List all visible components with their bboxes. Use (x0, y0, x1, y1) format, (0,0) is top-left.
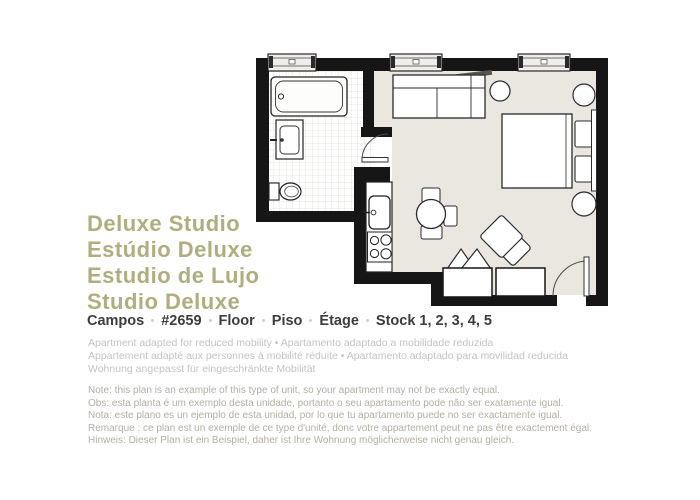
stove-4-burners (368, 232, 393, 262)
windows (268, 54, 570, 71)
closet-2 (496, 268, 545, 296)
separator-dot (209, 319, 212, 322)
info-floor-pt: Piso (272, 313, 303, 329)
separator-dot (262, 319, 265, 322)
floor-plan (254, 44, 612, 310)
window-1 (268, 54, 316, 71)
info-building: Campos (87, 313, 144, 329)
bathtub (271, 77, 347, 116)
separator-dot (366, 319, 369, 322)
toilet (269, 183, 301, 200)
unit-title-es: Estudio de Lujo (87, 263, 260, 289)
info-floor-fr: Étage (319, 313, 359, 329)
separator-dot (151, 319, 154, 322)
window-3 (518, 54, 570, 71)
disclaimer-fr: Remarque : ce plan est un exemple de ce … (88, 423, 592, 436)
unit-title-en: Deluxe Studio (87, 211, 260, 237)
disclaimer-es: Nota: este plano es un ejemplo de esta u… (88, 410, 592, 423)
window-2 (390, 54, 442, 71)
unit-title-pt: Estúdio Deluxe (87, 237, 260, 263)
pillow-1 (575, 121, 592, 147)
separator-dot (309, 319, 312, 322)
side-table-3 (572, 192, 596, 216)
headboard (592, 110, 597, 191)
disclaimer-de: Hinweis: Dieser Plan ist ein Beispiel, d… (88, 435, 592, 448)
info-floor-en: Floor (219, 313, 255, 329)
unit-info-line: Campos#2659FloorPisoÉtageStock 1, 2, 3, … (87, 313, 492, 329)
side-table-2 (573, 84, 595, 106)
mobility-line-1: Apartment adapted for reduced mobility •… (88, 337, 568, 350)
sofa (393, 75, 485, 118)
dining-table (417, 200, 446, 229)
mobility-note: Apartment adapted for reduced mobility •… (88, 337, 568, 376)
disclaimer-en: Note: this plan is an example of this ty… (88, 385, 592, 398)
info-unit-number: #2659 (161, 313, 201, 329)
plan-disclaimer: Note: this plan is an example of this ty… (88, 385, 592, 448)
unit-title-fr: Studio Deluxe (87, 289, 260, 315)
pillow-2 (575, 156, 592, 182)
unit-title-block: Deluxe Studio Estúdio Deluxe Estudio de … (87, 211, 260, 315)
disclaimer-pt: Obs: esta planta é um exemplo desta unid… (88, 398, 592, 411)
side-table-1 (490, 81, 510, 101)
mobility-line-3: Wohnung angepasst für eingeschränkte Mob… (88, 363, 568, 376)
closet-1 (443, 268, 492, 297)
page: Deluxe Studio Estúdio Deluxe Estudio de … (0, 0, 700, 500)
info-stock: Stock 1, 2, 3, 4, 5 (376, 313, 492, 329)
mobility-line-2: Appartement adapté aux personnes à mobil… (88, 350, 568, 363)
